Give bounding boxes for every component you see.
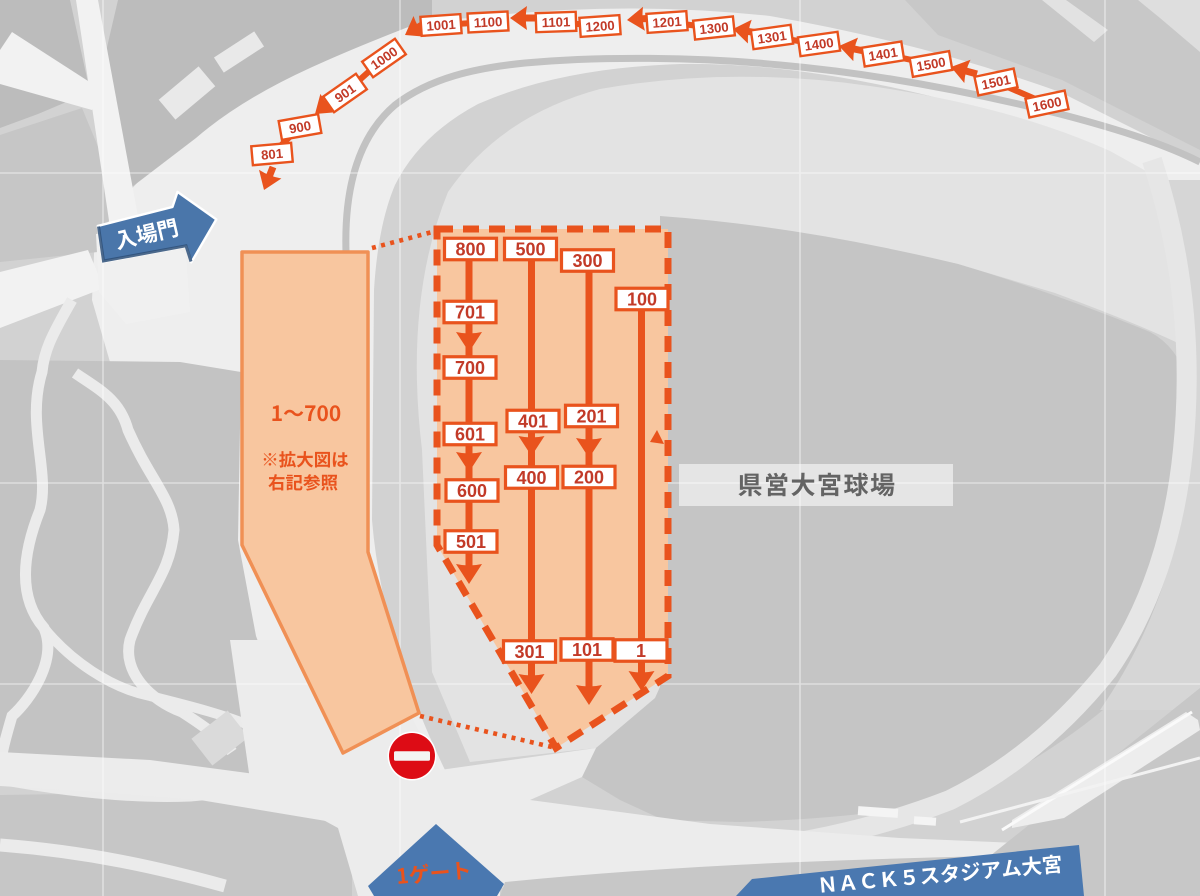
svg-text:601: 601 [455, 424, 485, 444]
svg-text:600: 600 [457, 481, 487, 501]
svg-text:701: 701 [455, 302, 485, 322]
svg-text:700: 700 [455, 358, 485, 378]
svg-text:1201: 1201 [652, 14, 682, 31]
svg-text:201: 201 [576, 406, 606, 426]
svg-text:401: 401 [518, 411, 548, 431]
svg-text:300: 300 [572, 251, 602, 271]
svg-text:1001: 1001 [426, 17, 456, 34]
svg-text:500: 500 [515, 239, 545, 259]
svg-text:100: 100 [627, 289, 657, 309]
svg-text:1100: 1100 [473, 14, 502, 30]
svg-text:400: 400 [516, 468, 546, 488]
svg-text:101: 101 [572, 640, 602, 660]
svg-text:301: 301 [514, 642, 544, 662]
svg-text:1101: 1101 [541, 14, 570, 30]
svg-text:801: 801 [260, 146, 283, 163]
svg-text:1300: 1300 [699, 19, 730, 37]
svg-text:501: 501 [456, 532, 486, 552]
svg-text:800: 800 [455, 239, 485, 259]
svg-text:200: 200 [574, 467, 604, 487]
svg-text:1200: 1200 [585, 18, 615, 35]
svg-text:1: 1 [636, 641, 646, 661]
